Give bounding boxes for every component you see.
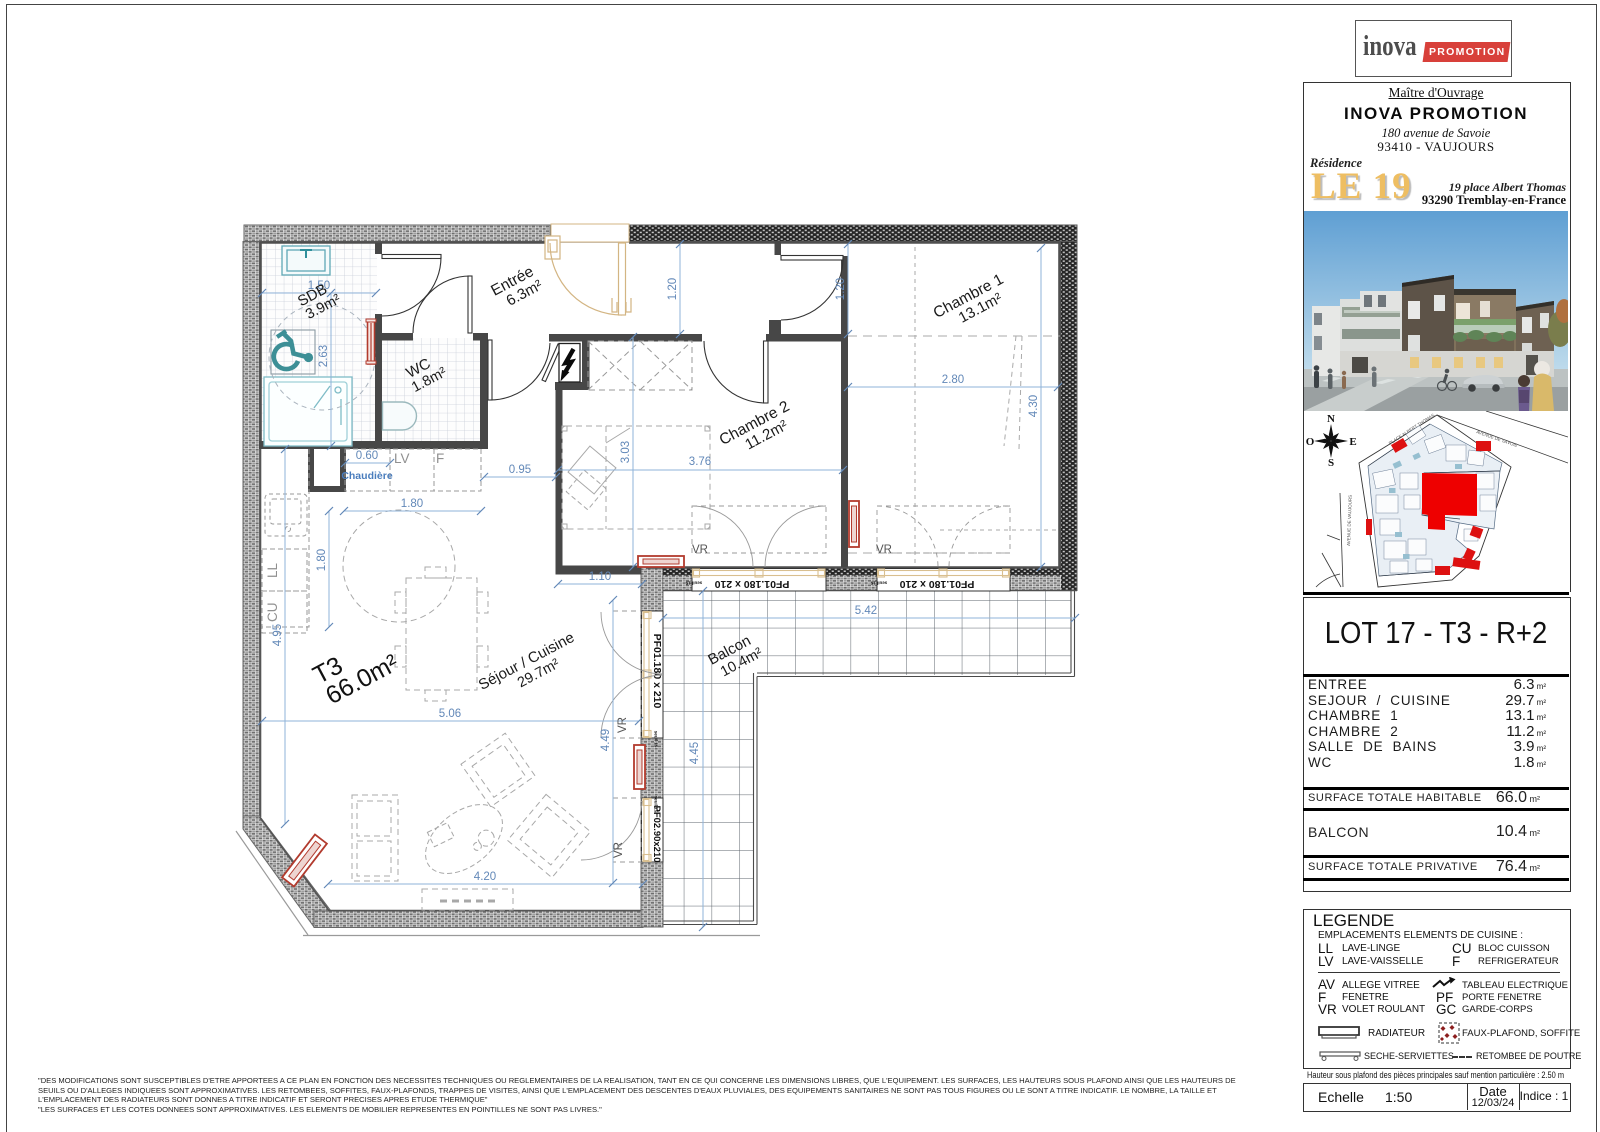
- svg-text:LL: LL: [265, 562, 280, 578]
- svg-text:4.30: 4.30: [1028, 395, 1040, 417]
- svg-text:1.80: 1.80: [401, 498, 423, 510]
- svg-text:F: F: [436, 451, 444, 466]
- svg-text:1.10: 1.10: [589, 571, 611, 583]
- svg-text:seuil 15: seuil 15: [654, 731, 659, 748]
- svg-text:1.80: 1.80: [316, 549, 328, 571]
- svg-text:CU: CU: [265, 603, 280, 623]
- svg-text:N: N: [1327, 413, 1335, 425]
- svg-text:2.80: 2.80: [942, 374, 964, 386]
- svg-text:1.20: 1.20: [835, 278, 847, 300]
- svg-text:VR: VR: [613, 842, 625, 858]
- svg-text:0.60: 0.60: [356, 450, 378, 462]
- svg-text:0.95: 0.95: [509, 464, 531, 476]
- svg-text:4.49: 4.49: [600, 729, 612, 751]
- svg-text:seuil 15: seuil 15: [685, 581, 702, 586]
- svg-text:VR: VR: [617, 717, 629, 733]
- svg-text:O: O: [1306, 436, 1315, 448]
- svg-text:4.45: 4.45: [689, 742, 701, 764]
- svg-text:PF01.180 x 210: PF01.180 x 210: [714, 578, 789, 590]
- svg-text:PF02.90x210: PF02.90x210: [651, 805, 662, 862]
- svg-text:1.20: 1.20: [667, 278, 679, 300]
- svg-text:LV: LV: [394, 451, 410, 466]
- svg-text:3.03: 3.03: [620, 441, 632, 463]
- svg-text:S: S: [1328, 457, 1334, 469]
- svg-text:4.20: 4.20: [474, 871, 496, 883]
- svg-text:4.95: 4.95: [272, 624, 284, 646]
- svg-text:PF01.180 x 210: PF01.180 x 210: [899, 578, 974, 590]
- svg-text:2.63: 2.63: [318, 345, 330, 367]
- svg-text:E: E: [1349, 436, 1356, 448]
- svg-text:3.76: 3.76: [689, 456, 711, 468]
- svg-text:Chaudière: Chaudière: [341, 470, 393, 482]
- svg-text:5.42: 5.42: [855, 605, 877, 617]
- svg-text:VR: VR: [876, 544, 892, 556]
- svg-text:5.06: 5.06: [439, 708, 461, 720]
- svg-text:PF01.180 x 210: PF01.180 x 210: [651, 634, 663, 709]
- svg-text:VR: VR: [692, 544, 708, 556]
- svg-text:seuil 15: seuil 15: [654, 796, 659, 813]
- svg-text:seuil 15: seuil 15: [870, 581, 887, 586]
